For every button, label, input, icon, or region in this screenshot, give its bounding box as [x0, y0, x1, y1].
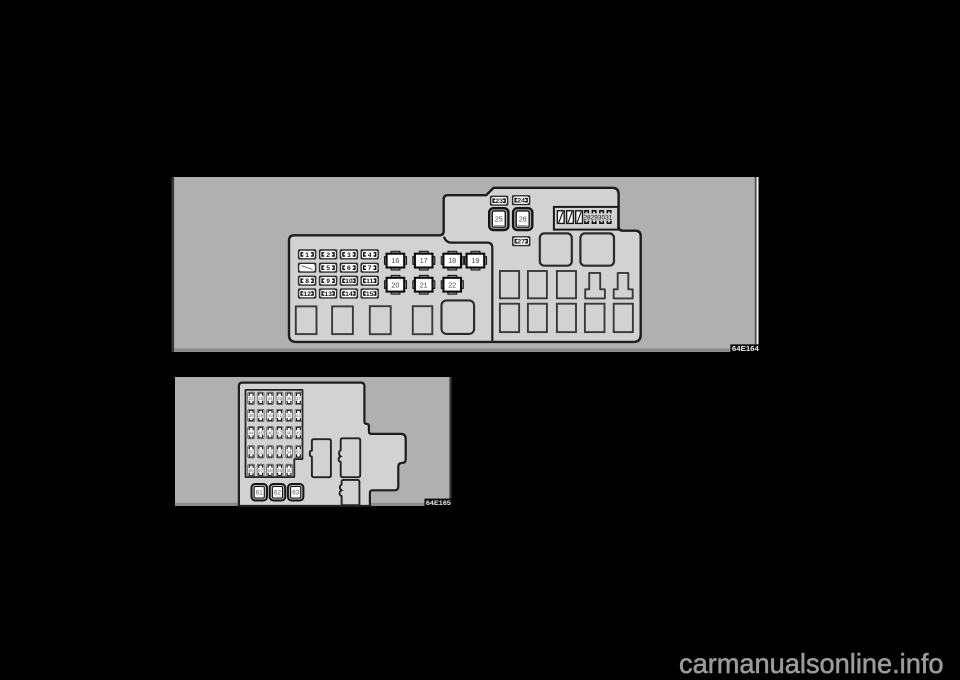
- svg-text:64E164: 64E164: [732, 346, 759, 353]
- svg-text:42: 42: [286, 413, 292, 418]
- svg-text:48: 48: [286, 430, 292, 435]
- svg-text:18: 18: [448, 256, 456, 265]
- svg-text:40: 40: [268, 413, 274, 418]
- svg-text:5: 5: [326, 265, 330, 272]
- svg-text:19: 19: [471, 256, 479, 265]
- svg-text:34: 34: [268, 396, 274, 401]
- svg-text:10: 10: [345, 278, 353, 285]
- svg-text:38: 38: [249, 413, 255, 418]
- svg-text:8: 8: [305, 278, 309, 285]
- svg-text:33: 33: [258, 396, 264, 401]
- svg-text:51: 51: [258, 450, 264, 455]
- svg-text:47: 47: [277, 430, 283, 435]
- svg-text:24: 24: [517, 198, 525, 205]
- svg-text:27: 27: [517, 239, 525, 246]
- svg-text:13: 13: [324, 291, 332, 298]
- svg-text:25: 25: [495, 215, 503, 224]
- svg-text:50: 50: [249, 450, 255, 455]
- svg-text:61: 61: [256, 490, 263, 497]
- svg-text:62: 62: [274, 490, 281, 497]
- svg-text:23: 23: [495, 198, 503, 205]
- svg-text:39: 39: [258, 413, 264, 418]
- svg-text:7: 7: [368, 265, 372, 272]
- svg-text:4: 4: [368, 252, 372, 259]
- svg-text:32: 32: [249, 396, 255, 401]
- svg-text:37: 37: [296, 396, 302, 401]
- svg-text:2: 2: [326, 252, 330, 259]
- svg-text:35: 35: [277, 396, 283, 401]
- svg-text:1: 1: [305, 252, 309, 259]
- svg-text:59: 59: [277, 468, 283, 473]
- svg-text:45: 45: [258, 430, 264, 435]
- svg-text:52: 52: [268, 450, 274, 455]
- svg-text:44: 44: [249, 430, 255, 435]
- svg-text:12: 12: [303, 291, 311, 298]
- svg-text:28293031: 28293031: [583, 215, 612, 222]
- svg-text:36: 36: [286, 396, 292, 401]
- svg-text:21: 21: [420, 280, 428, 289]
- svg-text:20: 20: [391, 280, 399, 289]
- svg-text:41: 41: [277, 413, 283, 418]
- svg-text:17: 17: [420, 256, 428, 265]
- svg-text:14: 14: [345, 291, 353, 298]
- svg-text:56: 56: [249, 468, 255, 473]
- svg-text:64E165: 64E165: [426, 500, 451, 507]
- svg-text:22: 22: [448, 280, 456, 289]
- svg-text:53: 53: [277, 450, 283, 455]
- svg-text:16: 16: [391, 256, 399, 265]
- svg-text:57: 57: [258, 468, 264, 473]
- svg-text:6: 6: [347, 265, 351, 272]
- svg-text:60: 60: [286, 468, 292, 473]
- svg-text:11: 11: [366, 278, 373, 285]
- svg-text:15: 15: [366, 291, 374, 298]
- svg-text:55: 55: [296, 450, 302, 455]
- svg-text:43: 43: [296, 413, 302, 418]
- svg-text:46: 46: [268, 430, 274, 435]
- svg-text:54: 54: [286, 450, 292, 455]
- svg-text:26: 26: [519, 215, 527, 224]
- svg-text:3: 3: [347, 252, 351, 259]
- svg-text:49: 49: [296, 430, 302, 435]
- svg-text:63: 63: [292, 490, 299, 497]
- svg-text:58: 58: [268, 468, 274, 473]
- svg-text:carmanualsonline.info: carmanualsonline.info: [679, 648, 944, 679]
- svg-text:9: 9: [326, 278, 330, 285]
